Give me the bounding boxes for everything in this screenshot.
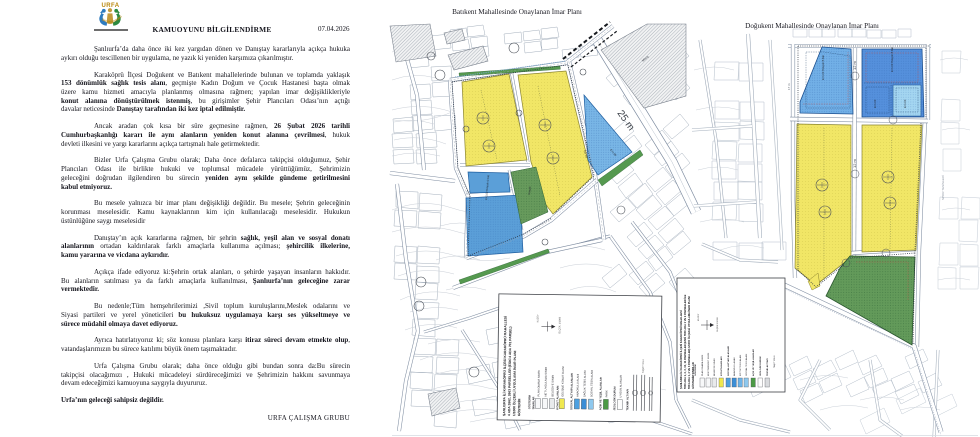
- svg-text:E=1.00 Yençok=5 Kat: E=1.00 Yençok=5 Kat: [890, 47, 894, 72]
- svg-text:ANAOKULU ALANI: ANAOKULU ALANI: [575, 374, 579, 397]
- svg-text:NET UYGULAMA SINIRI: NET UYGULAMA SINIRI: [543, 367, 547, 397]
- svg-text:25 m: 25 m: [615, 108, 637, 133]
- svg-text:ÖLÇEK 1/1000: ÖLÇEK 1/1000: [716, 317, 719, 332]
- svg-text:TAŞIT YOLU: TAŞIT YOLU: [642, 359, 645, 373]
- svg-text:PARK: PARK: [604, 390, 608, 397]
- svg-text:Yençok: Yençok: [527, 186, 532, 195]
- svg-text:GÖSTERİM: GÖSTERİM: [527, 394, 531, 409]
- svg-text:SOSYAL TESİS ALANI: SOSYAL TESİS ALANI: [745, 353, 748, 376]
- svg-text:E=1.00 Yençok=5 Kat: E=1.00 Yençok=5 Kat: [821, 55, 825, 80]
- svg-text:PLAN ONAMA SINIRI: PLAN ONAMA SINIRI: [701, 354, 704, 376]
- svg-text:KONUT ALANLARI: KONUT ALANLARI: [555, 385, 559, 409]
- svg-text:JEOLOJİK DURUM: JEOLOJİK DURUM: [612, 386, 616, 411]
- svg-text:GÖSTERİM: GÖSTERİM: [694, 364, 697, 376]
- svg-text:SINIRLAR: SINIRLAR: [531, 397, 535, 410]
- svg-text:ANAOKULU ALANI: ANAOKULU ALANI: [733, 357, 736, 376]
- svg-text:TEKNİK ALTYAPI: TEKNİK ALTYAPI: [625, 389, 629, 411]
- svg-text:KENT MERKEZİ SINIRI: KENT MERKEZİ SINIRI: [707, 352, 710, 376]
- svg-text:BELEDİYE SINIRI: BELEDİYE SINIRI: [713, 358, 716, 376]
- svg-text:JEOLOJİK DURUM: JEOLOJİK DURUM: [759, 356, 762, 376]
- svg-text:12 m: 12 m: [852, 158, 857, 168]
- svg-text:TEKNİK ALTYAPI: TEKNİK ALTYAPI: [766, 358, 769, 376]
- svg-text:EĞİTİM TESİS ALANI: EĞİTİM TESİS ALANI: [739, 354, 742, 376]
- svg-text:E=1.00: E=1.00: [903, 99, 907, 108]
- svg-text:ÖLÇEK: 1/1000: ÖLÇEK: 1/1000: [558, 316, 561, 333]
- svg-text:Doğukent Mahallesinde Onaylana: Doğukent Mahallesinde Onaylanan İmar Pla…: [745, 21, 879, 30]
- svg-text:UYGUN ALANLAR: UYGUN ALANLAR: [618, 375, 622, 398]
- svg-text:SPOR TESİSLERİ: SPOR TESİSLERİ: [940, 175, 945, 200]
- svg-text:TAŞIT YOLU: TAŞIT YOLU: [773, 355, 776, 368]
- svg-text:KONUT ALANLARI: KONUT ALANLARI: [720, 356, 723, 376]
- svg-text:GÖSTERİM: GÖSTERİM: [517, 398, 521, 416]
- svg-text:PLAN ONAMA SINIRI: PLAN ONAMA SINIRI: [536, 370, 540, 396]
- svg-text:E=1.00: E=1.00: [873, 99, 877, 108]
- svg-text:KUZEY: KUZEY: [698, 313, 700, 321]
- svg-text:17 m: 17 m: [787, 83, 791, 90]
- svg-text:SOSYAL ALTYAPI ALANLARI: SOSYAL ALTYAPI ALANLARI: [727, 346, 730, 376]
- svg-text:SOSYAL ALTYAPI ALANLARI: SOSYAL ALTYAPI ALANLARI: [569, 373, 574, 410]
- svg-text:Batıkent Mahallesinde Onaylana: Batıkent Mahallesinde Onaylanan İmar Pla…: [452, 7, 582, 16]
- svg-text:AÇIK VE YEŞİL ALANLAR: AÇIK VE YEŞİL ALANLAR: [598, 377, 602, 410]
- svg-text:AÇIK VE YEŞİL ALANLAR: AÇIK VE YEŞİL ALANLAR: [752, 349, 755, 376]
- svg-text:12 m: 12 m: [852, 60, 857, 70]
- svg-text:KUZEY: KUZEY: [536, 314, 539, 322]
